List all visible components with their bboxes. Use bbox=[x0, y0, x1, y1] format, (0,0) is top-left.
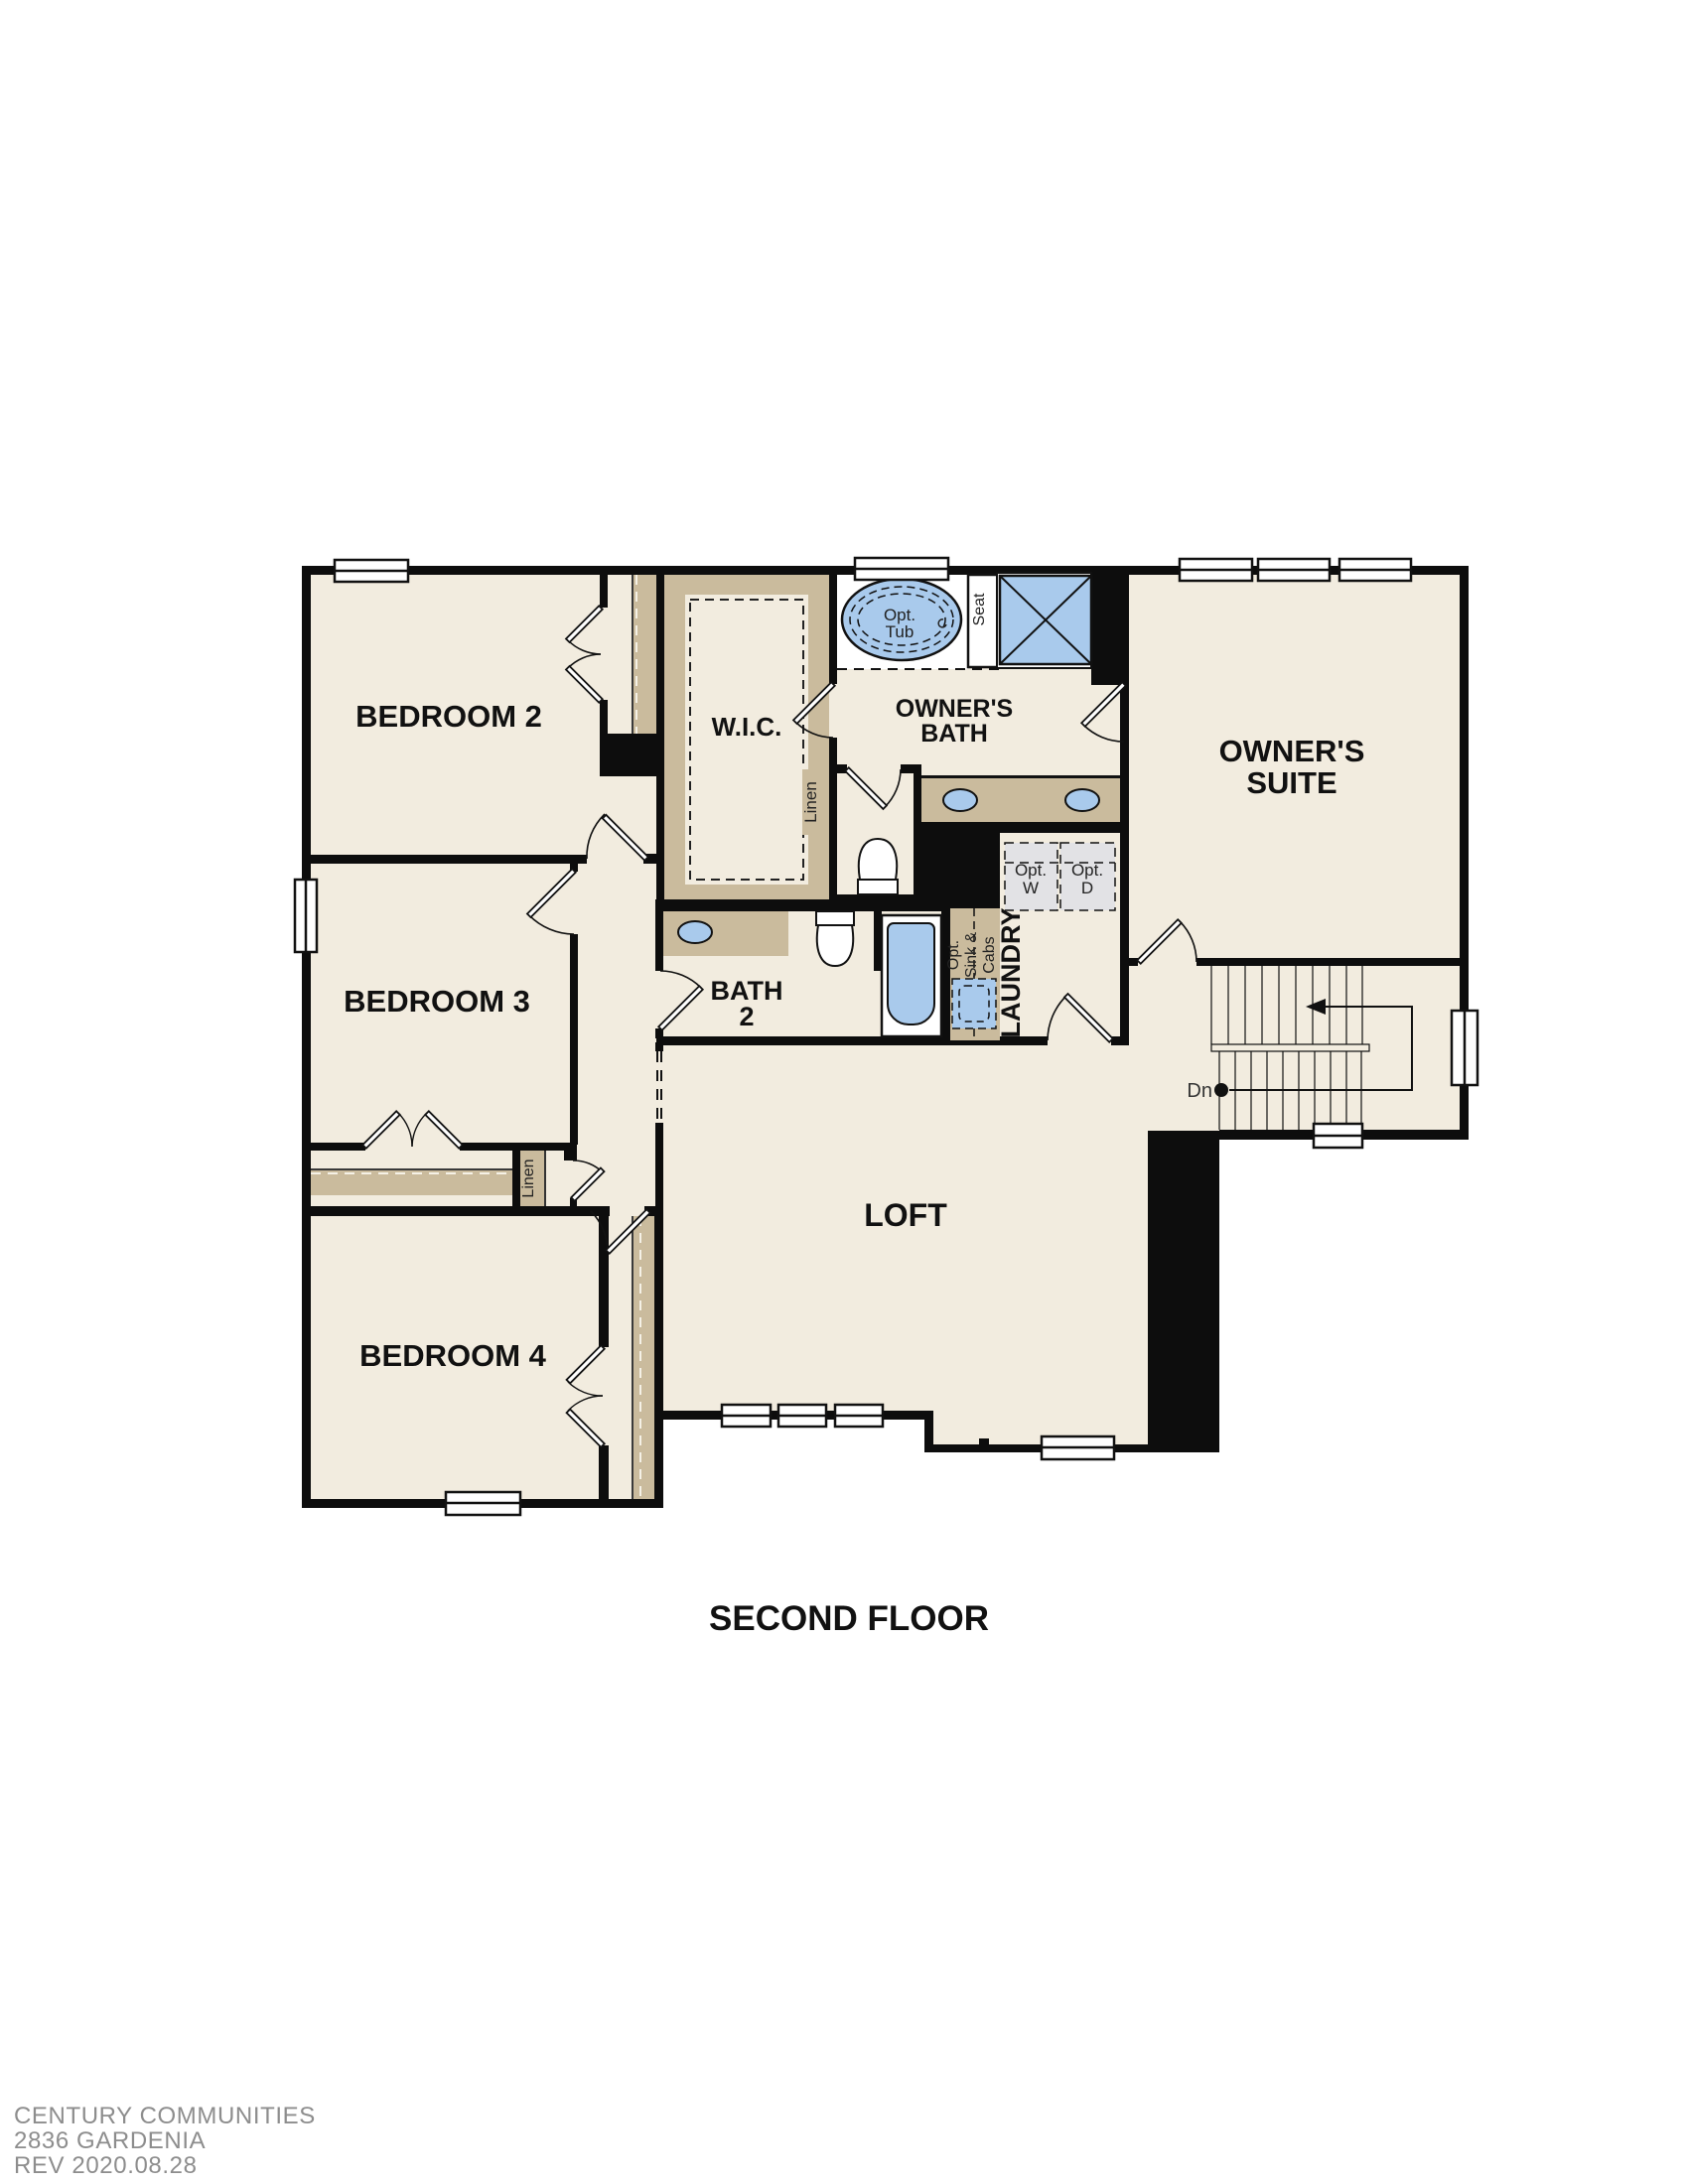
svg-text:BEDROOM 3: BEDROOM 3 bbox=[344, 984, 530, 1019]
svg-text:Linen: Linen bbox=[801, 781, 820, 823]
svg-text:SUITE: SUITE bbox=[1246, 765, 1336, 800]
svg-text:Dn: Dn bbox=[1187, 1080, 1212, 1102]
svg-text:2836 GARDENIA: 2836 GARDENIA bbox=[14, 2127, 206, 2154]
svg-text:LAUNDRY: LAUNDRY bbox=[996, 908, 1026, 1038]
svg-text:Opt.: Opt. bbox=[945, 940, 962, 970]
svg-text:D: D bbox=[1081, 879, 1093, 897]
svg-text:BEDROOM 2: BEDROOM 2 bbox=[355, 699, 542, 734]
svg-text:BEDROOM 4: BEDROOM 4 bbox=[359, 1338, 547, 1373]
svg-text:LOFT: LOFT bbox=[864, 1197, 947, 1233]
svg-text:Sink &: Sink & bbox=[963, 932, 980, 979]
svg-text:BATH: BATH bbox=[920, 720, 988, 748]
svg-text:SECOND FLOOR: SECOND FLOOR bbox=[709, 1599, 989, 1638]
svg-text:Linen: Linen bbox=[520, 1159, 537, 1197]
svg-text:Opt.: Opt. bbox=[1071, 861, 1103, 880]
svg-text:CENTURY COMMUNITIES: CENTURY COMMUNITIES bbox=[14, 2103, 316, 2129]
svg-text:OWNER'S: OWNER'S bbox=[1219, 734, 1365, 768]
svg-text:OWNER'S: OWNER'S bbox=[896, 695, 1013, 723]
svg-text:Opt.: Opt. bbox=[1015, 861, 1047, 880]
svg-text:W: W bbox=[1023, 879, 1039, 897]
svg-text:Tub: Tub bbox=[886, 622, 914, 641]
svg-text:REV 2020.08.28: REV 2020.08.28 bbox=[14, 2152, 198, 2179]
svg-text:W.I.C.: W.I.C. bbox=[712, 712, 782, 742]
svg-text:2: 2 bbox=[739, 1002, 754, 1031]
svg-text:Seat: Seat bbox=[971, 593, 988, 625]
